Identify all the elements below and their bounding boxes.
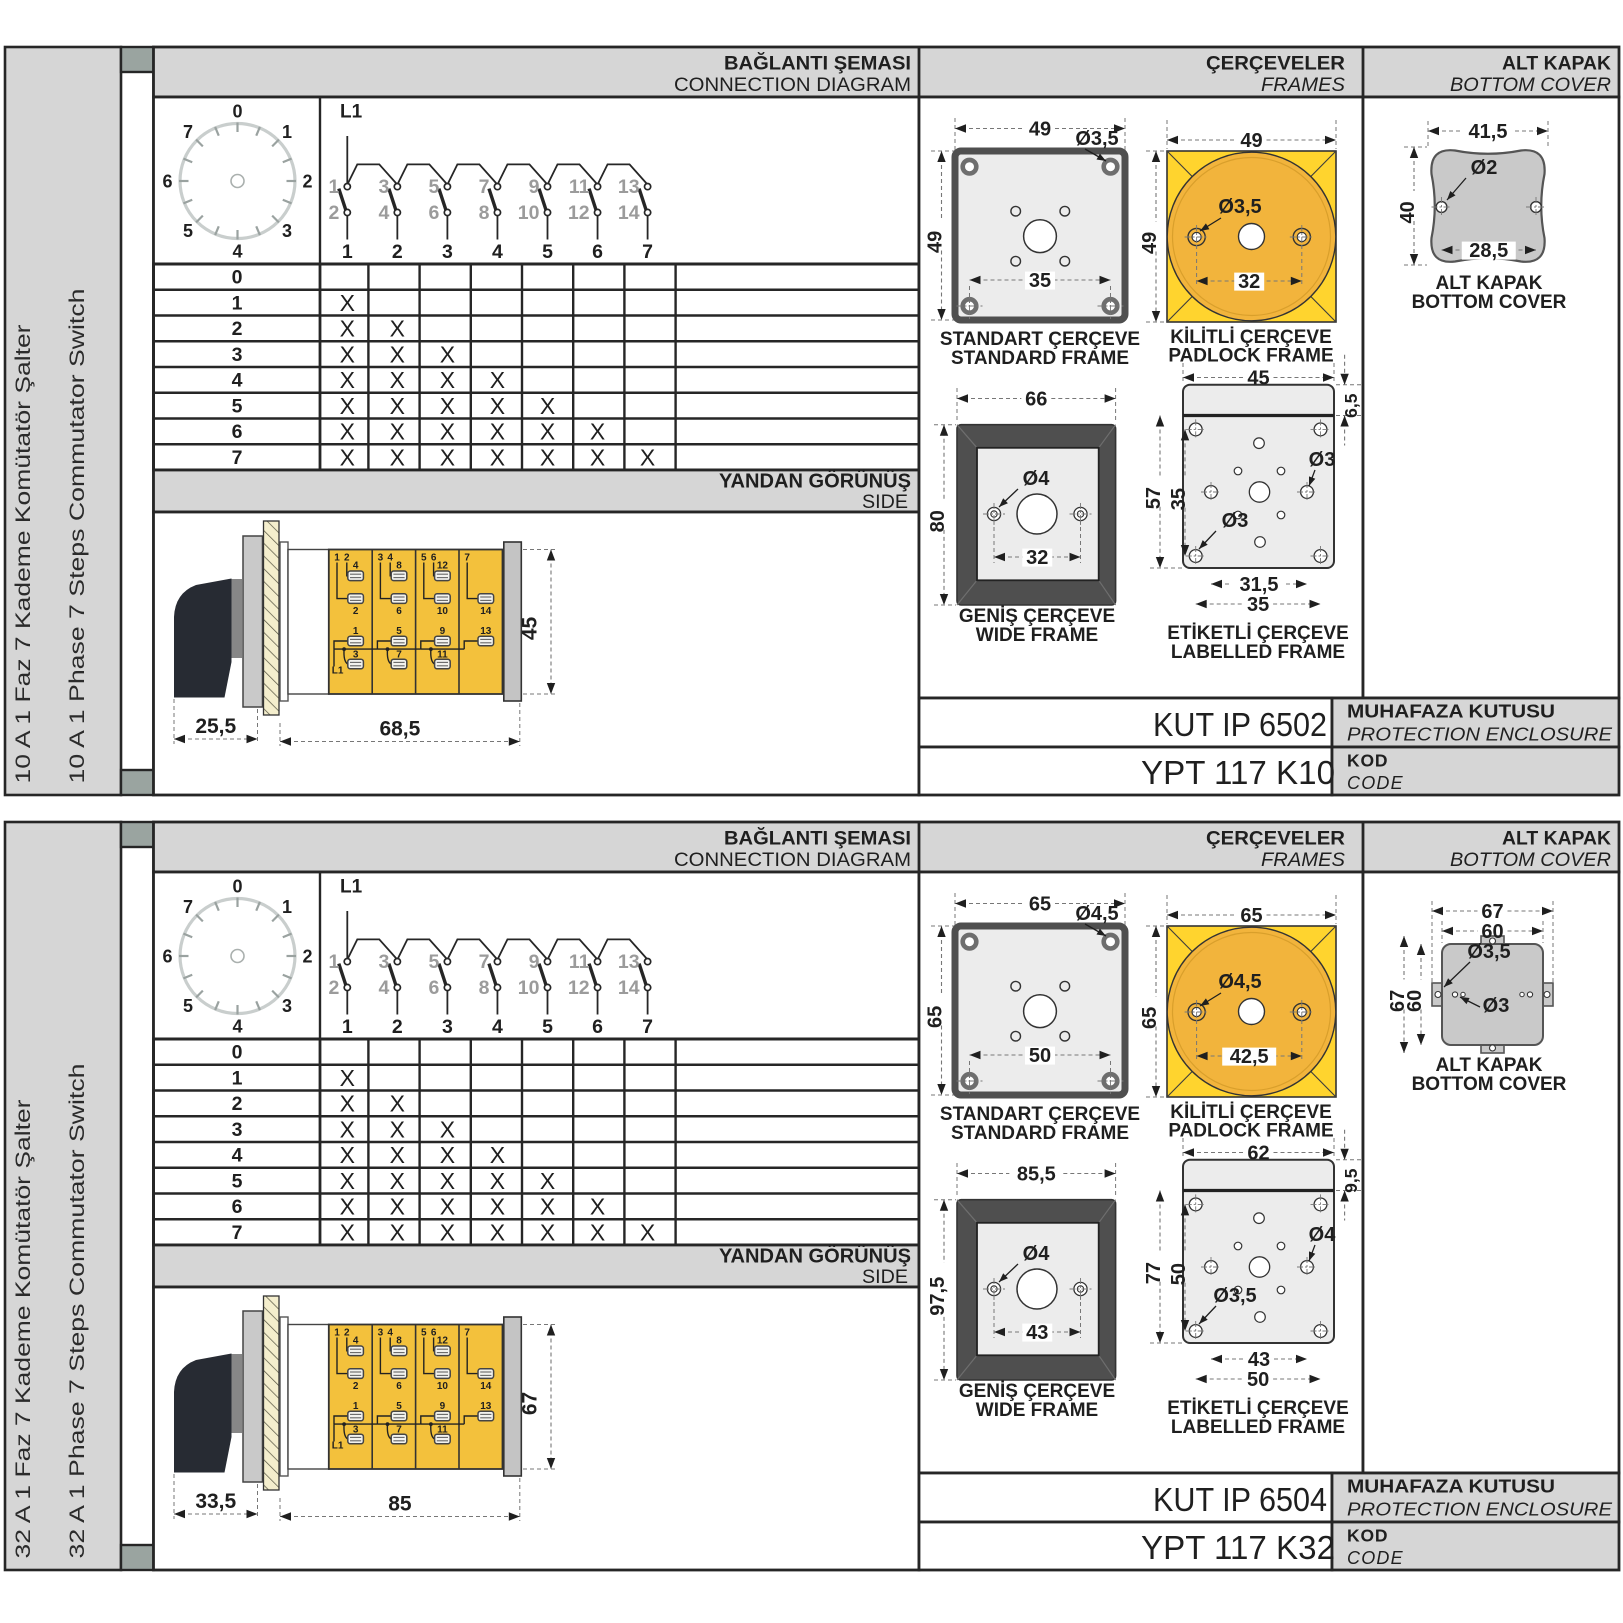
svg-text:X: X [590,1219,605,1245]
svg-text:60: 60 [1404,990,1426,1012]
svg-text:PROTECTION ENCLOSURE: PROTECTION ENCLOSURE [1347,725,1613,745]
svg-text:10: 10 [437,606,449,617]
svg-text:X: X [340,393,355,419]
svg-text:X: X [340,1142,355,1168]
svg-text:2: 2 [353,606,359,617]
svg-text:7: 7 [464,553,470,564]
svg-text:X: X [440,367,455,393]
svg-text:1: 1 [232,292,243,314]
svg-text:65: 65 [1240,905,1262,927]
svg-text:Ø3: Ø3 [1483,995,1510,1017]
svg-text:8: 8 [479,977,490,999]
svg-text:11: 11 [437,1424,448,1435]
svg-text:32: 32 [1238,271,1260,293]
svg-text:49: 49 [1139,232,1161,254]
svg-text:X: X [490,393,505,419]
svg-text:L1: L1 [340,877,363,898]
svg-text:5: 5 [183,221,193,241]
svg-text:X: X [340,341,355,367]
svg-text:3: 3 [442,241,453,263]
svg-text:LABELLED FRAME: LABELLED FRAME [1171,1417,1345,1438]
svg-text:X: X [440,1142,455,1168]
svg-text:5: 5 [183,996,193,1016]
svg-text:41,5: 41,5 [1469,121,1508,143]
svg-text:X: X [340,1219,355,1245]
svg-text:4: 4 [232,1017,242,1037]
svg-text:X: X [490,419,505,445]
svg-text:WIDE FRAME: WIDE FRAME [976,625,1098,646]
svg-text:12: 12 [437,561,449,572]
svg-text:4: 4 [378,977,389,999]
svg-text:0: 0 [232,267,243,289]
svg-text:5: 5 [421,553,427,564]
svg-text:X: X [490,444,505,470]
svg-text:14: 14 [618,202,640,224]
svg-text:12: 12 [568,977,590,999]
svg-text:9,5: 9,5 [1341,1168,1361,1193]
svg-text:X: X [340,1091,355,1117]
svg-text:4: 4 [378,202,389,224]
svg-text:5: 5 [421,1328,427,1339]
svg-text:YPT 117 K32: YPT 117 K32 [1141,1529,1335,1566]
svg-text:62: 62 [1247,1142,1269,1164]
svg-text:GENİŞ ÇERÇEVE: GENİŞ ÇERÇEVE [959,1381,1115,1402]
svg-text:Ø4,5: Ø4,5 [1075,903,1118,925]
svg-text:MUHAFAZA KUTUSU: MUHAFAZA KUTUSU [1347,702,1555,722]
svg-text:X: X [590,419,605,445]
svg-text:28,5: 28,5 [1469,240,1508,262]
svg-text:FRAMES: FRAMES [1261,74,1345,96]
svg-text:9: 9 [440,1401,446,1412]
svg-text:X: X [340,419,355,445]
svg-text:12: 12 [568,202,590,224]
svg-text:10: 10 [518,202,540,224]
svg-text:Ø3: Ø3 [1309,449,1336,471]
svg-text:7: 7 [232,447,243,469]
svg-text:2: 2 [344,1328,350,1339]
svg-text:50: 50 [1247,1369,1269,1391]
svg-text:FRAMES: FRAMES [1261,849,1345,871]
svg-text:31,5: 31,5 [1240,574,1279,596]
svg-text:10 A 1 Faz 7 Kademe Komütatör: 10 A 1 Faz 7 Kademe Komütatör Şalter [11,325,35,784]
svg-text:14: 14 [480,1381,492,1392]
svg-text:X: X [540,1168,555,1194]
svg-text:ETİKETLİ ÇERÇEVE: ETİKETLİ ÇERÇEVE [1167,1398,1349,1419]
svg-text:4: 4 [492,241,503,263]
svg-text:66: 66 [1025,388,1047,410]
svg-text:1: 1 [334,553,340,564]
svg-text:2: 2 [353,1381,359,1392]
svg-text:CONNECTION DIAGRAM: CONNECTION DIAGRAM [674,74,911,96]
svg-text:3: 3 [378,951,389,973]
svg-text:80: 80 [927,510,949,532]
svg-text:BAĞLANTI ŞEMASI: BAĞLANTI ŞEMASI [724,827,911,850]
svg-text:PADLOCK FRAME: PADLOCK FRAME [1168,1121,1333,1142]
svg-text:7: 7 [183,897,193,917]
svg-text:50: 50 [1029,1045,1051,1067]
svg-text:ETİKETLİ ÇERÇEVE: ETİKETLİ ÇERÇEVE [1167,623,1349,644]
svg-text:SIDE: SIDE [862,1266,908,1288]
svg-text:X: X [440,1194,455,1220]
svg-text:WIDE FRAME: WIDE FRAME [976,1400,1098,1421]
svg-text:43: 43 [1026,1322,1048,1344]
svg-text:14: 14 [618,977,640,999]
svg-text:X: X [440,419,455,445]
svg-text:Ø3,5: Ø3,5 [1075,128,1118,150]
svg-text:5: 5 [542,241,553,263]
svg-text:STANDART ÇERÇEVE: STANDART ÇERÇEVE [940,1104,1140,1125]
svg-text:ALT KAPAK: ALT KAPAK [1436,273,1543,294]
svg-text:13: 13 [618,176,640,198]
svg-text:3: 3 [353,649,359,660]
svg-text:Ø3,5: Ø3,5 [1218,196,1261,218]
svg-text:BOTTOM COVER: BOTTOM COVER [1412,1074,1567,1095]
svg-text:X: X [540,444,555,470]
svg-text:5: 5 [542,1016,553,1038]
svg-text:85: 85 [388,1493,412,1516]
svg-text:X: X [340,1194,355,1220]
svg-text:X: X [490,1219,505,1245]
svg-text:Ø4,5: Ø4,5 [1218,971,1261,993]
svg-text:L1: L1 [332,666,344,677]
svg-text:4: 4 [387,553,393,564]
svg-text:7: 7 [479,951,490,973]
svg-text:2: 2 [344,553,350,564]
svg-text:SIDE: SIDE [862,491,908,513]
svg-text:4: 4 [353,1336,359,1347]
svg-text:42,5: 42,5 [1230,1046,1269,1068]
svg-text:45: 45 [1247,367,1269,389]
svg-text:4: 4 [232,1145,243,1167]
svg-text:X: X [440,444,455,470]
svg-text:6: 6 [396,606,402,617]
svg-text:8: 8 [396,1336,402,1347]
svg-text:X: X [390,1142,405,1168]
svg-text:32 A 1 Phase 7 Steps Commutato: 32 A 1 Phase 7 Steps Commutator Switch [65,1064,89,1559]
svg-text:X: X [440,393,455,419]
svg-text:5: 5 [232,1170,243,1192]
svg-text:X: X [540,1219,555,1245]
svg-text:1: 1 [328,176,339,198]
svg-text:77: 77 [1143,1262,1165,1284]
svg-text:68,5: 68,5 [379,718,420,741]
svg-text:Ø3,5: Ø3,5 [1213,1285,1256,1307]
svg-text:X: X [340,444,355,470]
svg-text:2: 2 [302,947,312,967]
svg-text:Ø4: Ø4 [1023,468,1051,490]
svg-text:LABELLED FRAME: LABELLED FRAME [1171,642,1345,663]
svg-text:1: 1 [328,951,339,973]
svg-text:5: 5 [396,1401,402,1412]
svg-text:KUT IP 6502: KUT IP 6502 [1153,706,1327,743]
svg-text:6,5: 6,5 [1341,393,1361,418]
svg-text:1: 1 [334,1328,340,1339]
svg-text:STANDARD FRAME: STANDARD FRAME [951,1123,1129,1144]
svg-text:0: 0 [232,102,242,122]
svg-text:11: 11 [569,951,590,973]
svg-text:10 A 1 Phase 7 Steps Commutato: 10 A 1 Phase 7 Steps Commutator Switch [65,289,89,784]
svg-text:6: 6 [429,202,440,224]
svg-text:X: X [590,1194,605,1220]
svg-text:7: 7 [183,122,193,142]
svg-text:3: 3 [378,1328,384,1339]
svg-text:1: 1 [282,122,292,142]
svg-text:ÇERÇEVELER: ÇERÇEVELER [1206,53,1345,75]
svg-text:3: 3 [442,1016,453,1038]
svg-text:7: 7 [396,649,402,660]
svg-text:14: 14 [480,606,492,617]
svg-text:8: 8 [396,561,402,572]
svg-text:4: 4 [387,1328,393,1339]
svg-text:BOTTOM COVER: BOTTOM COVER [1450,849,1611,871]
svg-text:35: 35 [1168,488,1190,510]
svg-text:1: 1 [232,1067,243,1089]
svg-text:6: 6 [232,421,243,443]
svg-text:97,5: 97,5 [927,1277,949,1316]
svg-text:85,5: 85,5 [1017,1163,1056,1185]
svg-text:Ø4: Ø4 [1023,1243,1051,1265]
svg-text:67: 67 [1481,901,1503,923]
svg-text:X: X [490,1142,505,1168]
svg-text:45: 45 [518,616,541,640]
svg-text:6: 6 [232,1196,243,1218]
svg-text:X: X [390,1116,405,1142]
svg-text:L1: L1 [340,102,363,123]
svg-text:67: 67 [518,1392,541,1415]
svg-text:X: X [390,341,405,367]
svg-text:ALT KAPAK: ALT KAPAK [1502,828,1611,850]
svg-text:X: X [390,1219,405,1245]
svg-text:1: 1 [342,1016,353,1038]
svg-text:35: 35 [1247,594,1269,616]
svg-text:X: X [340,1065,355,1091]
svg-text:5: 5 [396,626,402,637]
svg-text:X: X [390,1194,405,1220]
svg-text:X: X [590,444,605,470]
svg-text:7: 7 [479,176,490,198]
svg-text:2: 2 [302,172,312,192]
svg-text:BOTTOM COVER: BOTTOM COVER [1412,292,1567,313]
svg-text:Ø3: Ø3 [1222,510,1249,532]
svg-text:3: 3 [282,221,292,241]
svg-text:50: 50 [1168,1263,1190,1285]
svg-text:1: 1 [342,241,353,263]
svg-text:X: X [340,1116,355,1142]
svg-text:13: 13 [480,1401,492,1412]
svg-text:43: 43 [1248,1349,1270,1371]
svg-text:57: 57 [1143,487,1165,509]
svg-text:32: 32 [1026,547,1048,569]
svg-text:35: 35 [1029,270,1051,292]
svg-text:X: X [540,1194,555,1220]
svg-text:X: X [390,1168,405,1194]
svg-text:40: 40 [1397,201,1419,223]
svg-text:0: 0 [232,877,242,897]
svg-text:X: X [640,1219,655,1245]
svg-text:9: 9 [529,951,540,973]
svg-text:X: X [440,341,455,367]
svg-text:Ø2: Ø2 [1471,157,1498,179]
svg-text:X: X [490,1168,505,1194]
svg-text:4: 4 [353,561,359,572]
svg-text:X: X [440,1116,455,1142]
svg-text:6: 6 [162,172,172,192]
svg-text:49: 49 [1029,118,1051,140]
svg-text:1: 1 [353,626,359,637]
svg-text:PADLOCK FRAME: PADLOCK FRAME [1168,346,1333,367]
svg-text:4: 4 [232,370,243,392]
svg-text:ÇERÇEVELER: ÇERÇEVELER [1206,828,1345,850]
svg-text:1: 1 [282,897,292,917]
svg-text:STANDART ÇERÇEVE: STANDART ÇERÇEVE [940,329,1140,350]
svg-text:X: X [540,419,555,445]
svg-text:YPT 117 K10: YPT 117 K10 [1141,754,1335,791]
svg-text:X: X [340,367,355,393]
svg-text:25,5: 25,5 [195,715,236,738]
svg-text:4: 4 [492,1016,503,1038]
svg-text:10: 10 [437,1381,449,1392]
svg-text:L1: L1 [332,1441,344,1452]
svg-text:3: 3 [232,1119,243,1141]
svg-text:6: 6 [592,1016,603,1038]
svg-text:2: 2 [392,241,403,263]
svg-text:6: 6 [162,947,172,967]
svg-text:33,5: 33,5 [195,1490,236,1513]
svg-text:X: X [390,1091,405,1117]
svg-text:2: 2 [328,202,339,224]
svg-text:60: 60 [1481,921,1503,943]
svg-text:10: 10 [518,977,540,999]
svg-text:MUHAFAZA KUTUSU: MUHAFAZA KUTUSU [1347,1477,1555,1497]
svg-text:12: 12 [437,1336,449,1347]
svg-text:Ø4: Ø4 [1309,1224,1337,1246]
svg-text:7: 7 [396,1424,402,1435]
svg-text:32 A 1 Faz 7 Kademe Komütatör: 32 A 1 Faz 7 Kademe Komütatör Şalter [11,1100,35,1559]
svg-text:49: 49 [924,231,946,253]
svg-text:CODE: CODE [1347,1548,1404,1568]
svg-text:6: 6 [592,241,603,263]
svg-text:9: 9 [440,626,446,637]
svg-text:BAĞLANTI ŞEMASI: BAĞLANTI ŞEMASI [724,52,911,75]
svg-text:3: 3 [378,176,389,198]
svg-text:X: X [390,367,405,393]
svg-text:STANDARD FRAME: STANDARD FRAME [951,348,1129,369]
svg-text:13: 13 [480,626,492,637]
svg-text:3: 3 [232,344,243,366]
svg-text:X: X [340,316,355,342]
svg-text:ALT KAPAK: ALT KAPAK [1502,53,1611,75]
svg-text:7: 7 [642,1016,653,1038]
svg-text:X: X [490,1194,505,1220]
svg-text:KUT IP 6504: KUT IP 6504 [1153,1481,1327,1518]
svg-text:X: X [340,290,355,316]
svg-text:X: X [390,419,405,445]
svg-text:8: 8 [479,202,490,224]
svg-text:X: X [540,393,555,419]
svg-text:BOTTOM COVER: BOTTOM COVER [1450,74,1611,96]
svg-text:6: 6 [396,1381,402,1392]
svg-text:5: 5 [429,176,440,198]
svg-text:7: 7 [232,1222,243,1244]
svg-text:CONNECTION DIAGRAM: CONNECTION DIAGRAM [674,849,911,871]
svg-text:2: 2 [232,318,243,340]
svg-text:X: X [640,444,655,470]
svg-text:X: X [440,1219,455,1245]
svg-text:KOD: KOD [1347,751,1388,771]
svg-text:65: 65 [924,1006,946,1028]
svg-text:11: 11 [437,649,448,660]
svg-text:4: 4 [232,242,242,262]
svg-text:YANDAN GÖRÜNÜŞ: YANDAN GÖRÜNÜŞ [719,470,911,493]
svg-text:X: X [340,1168,355,1194]
svg-text:2: 2 [392,1016,403,1038]
svg-text:65: 65 [1029,893,1051,915]
svg-text:13: 13 [618,951,640,973]
svg-text:11: 11 [569,176,590,198]
svg-text:0: 0 [232,1042,243,1064]
svg-text:PROTECTION ENCLOSURE: PROTECTION ENCLOSURE [1347,1500,1613,1520]
svg-text:1: 1 [353,1401,359,1412]
svg-text:7: 7 [642,241,653,263]
svg-text:CODE: CODE [1347,773,1404,793]
svg-text:X: X [390,316,405,342]
svg-text:49: 49 [1240,130,1262,152]
svg-text:X: X [440,1168,455,1194]
svg-text:X: X [390,393,405,419]
svg-text:65: 65 [1139,1007,1161,1029]
svg-text:2: 2 [328,977,339,999]
svg-text:3: 3 [378,553,384,564]
svg-text:3: 3 [353,1424,359,1435]
svg-text:Ø3,5: Ø3,5 [1467,941,1510,963]
svg-text:YANDAN GÖRÜNÜŞ: YANDAN GÖRÜNÜŞ [719,1245,911,1268]
svg-text:2: 2 [232,1093,243,1115]
svg-text:X: X [490,367,505,393]
svg-text:ALT KAPAK: ALT KAPAK [1436,1055,1543,1076]
svg-text:3: 3 [282,996,292,1016]
svg-text:7: 7 [464,1328,470,1339]
svg-text:5: 5 [232,395,243,417]
svg-text:X: X [390,444,405,470]
svg-text:9: 9 [529,176,540,198]
svg-text:5: 5 [429,951,440,973]
svg-text:GENİŞ ÇERÇEVE: GENİŞ ÇERÇEVE [959,606,1115,627]
svg-text:6: 6 [429,977,440,999]
svg-text:KOD: KOD [1347,1526,1388,1546]
